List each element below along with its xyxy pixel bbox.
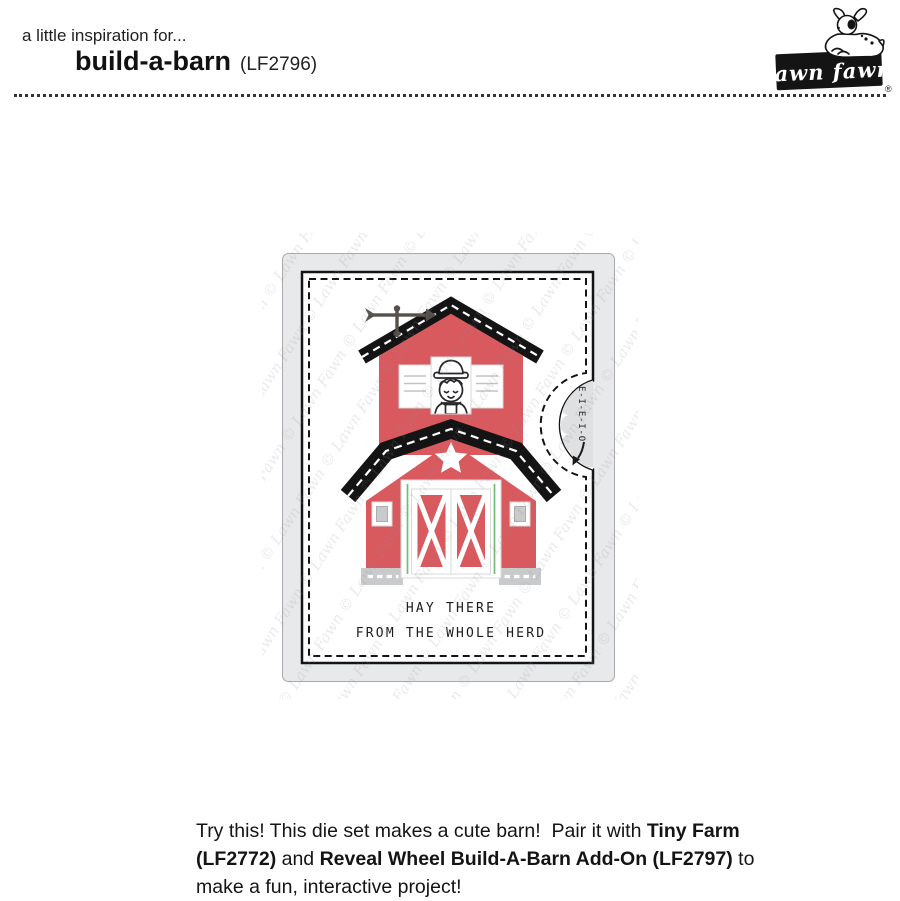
product-name: build-a-barn bbox=[75, 46, 231, 76]
wheel-text: E-I-E-I-O bbox=[576, 386, 586, 442]
barn-card: E-I-E-I-O bbox=[282, 253, 615, 682]
registered-mark: ® bbox=[885, 84, 892, 94]
lawn-fawn-logo: lawn fawn ® bbox=[768, 6, 894, 96]
tagline: a little inspiration for... bbox=[22, 26, 186, 46]
barn-doors bbox=[401, 480, 501, 578]
dotted-divider bbox=[14, 94, 886, 97]
description-text: Try this! This die set makes a cute barn… bbox=[196, 817, 771, 901]
farmer-window bbox=[399, 357, 503, 414]
sentiment-line-1: HAY THERE bbox=[406, 601, 496, 616]
product-code: (LF2796) bbox=[240, 54, 317, 75]
farmer-illustration bbox=[434, 361, 468, 415]
fawn-icon bbox=[826, 9, 884, 58]
page-title: build-a-barn(LF2796) bbox=[75, 46, 317, 77]
card-photo: E-I-E-I-O bbox=[262, 233, 638, 699]
sentiment-line-2: FROM THE WHOLE HERD bbox=[356, 626, 547, 641]
